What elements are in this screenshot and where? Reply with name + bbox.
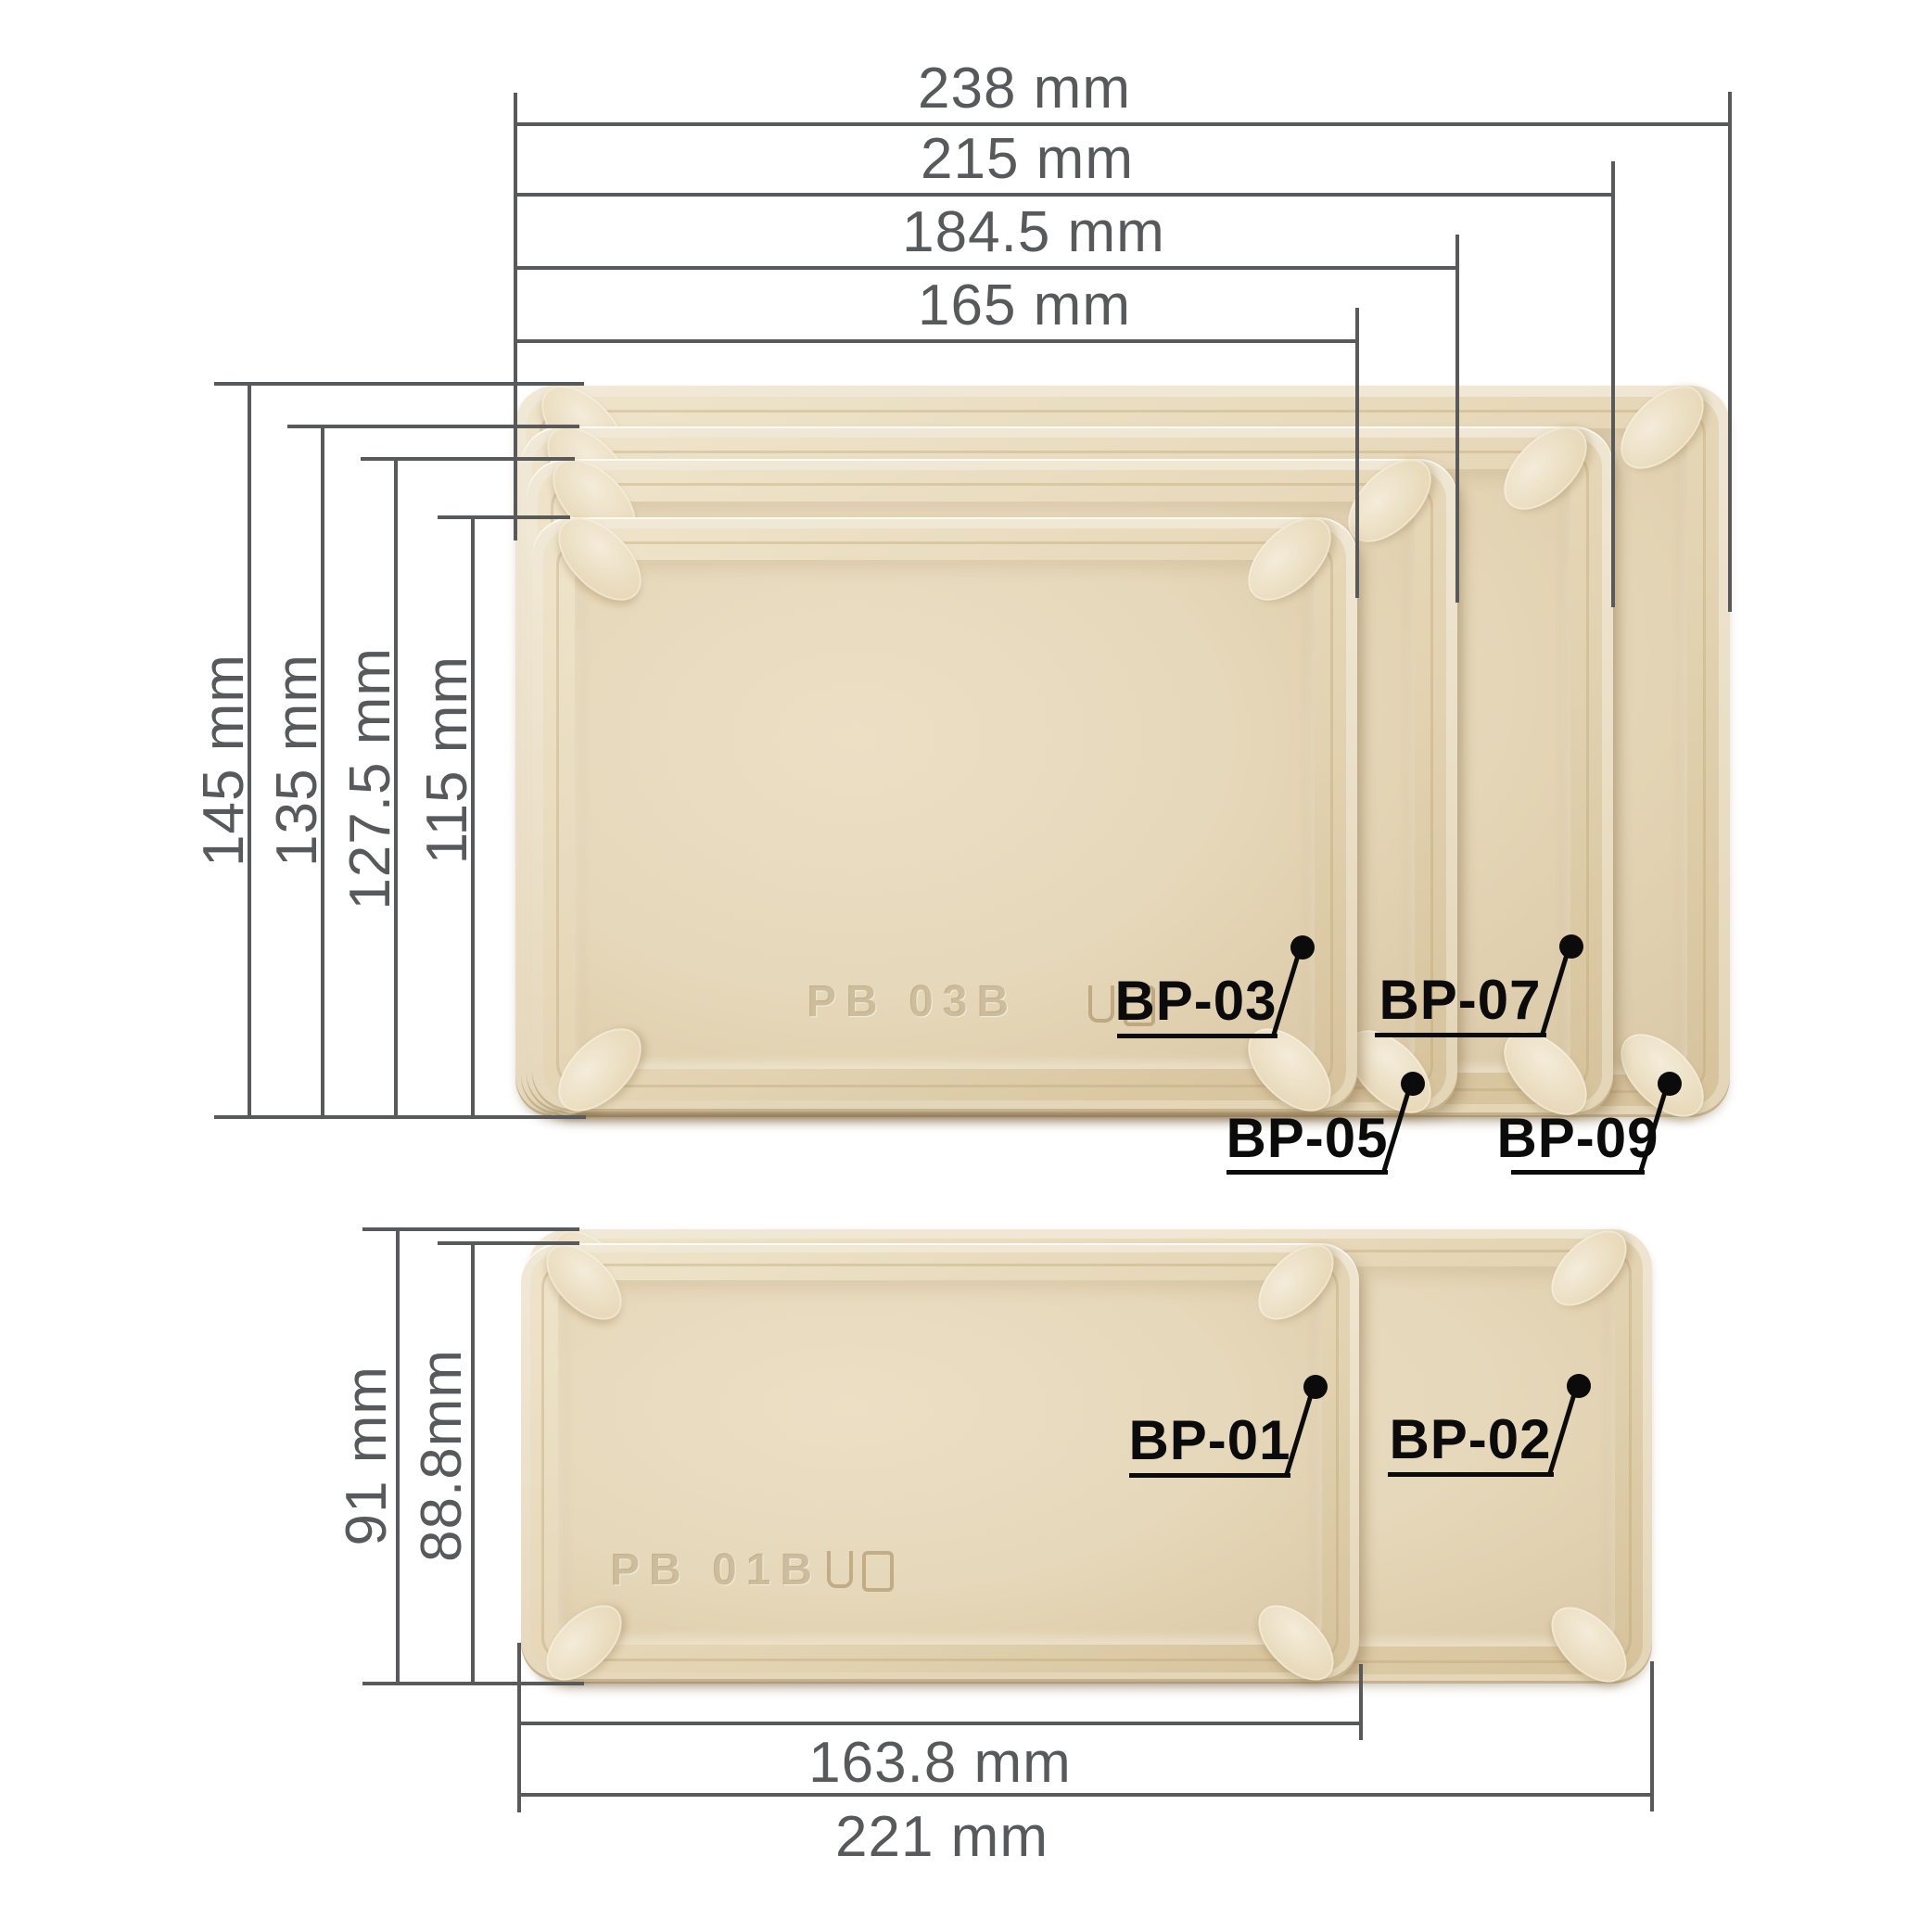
- dim-label-165mm: 165 mm: [793, 273, 1256, 338]
- callout-dot-bp03: [1290, 935, 1315, 960]
- dim-line-163.8mm: [519, 1722, 1361, 1725]
- extension-line-145mm-top: [214, 382, 584, 386]
- callout-label-bp05: BP-05: [1214, 1109, 1400, 1168]
- dim-label-135mm: 135 mm: [267, 436, 326, 1085]
- callout-label-bp02: BP-02: [1378, 1410, 1563, 1469]
- dim-label-145mm: 145 mm: [194, 436, 253, 1085]
- callout-dot-bp01: [1303, 1375, 1328, 1399]
- dim-label-215mm: 215 mm: [795, 127, 1259, 192]
- dim-label-221mm: 221 mm: [710, 1805, 1174, 1870]
- callout-label-bp01: BP-01: [1117, 1411, 1303, 1470]
- callout-dot-bp09: [1658, 1072, 1682, 1096]
- callout-underline-bp02: [1388, 1472, 1554, 1477]
- dim-line-184.5mm: [515, 266, 1457, 270]
- extension-line-163.8mm-right: [1359, 1664, 1363, 1740]
- dim-line-215mm: [515, 193, 1613, 197]
- dim-label-163.8mm: 163.8 mm: [708, 1731, 1172, 1796]
- extension-line-184.5mm-right: [1455, 235, 1459, 603]
- callout-underline-bp07: [1375, 1033, 1546, 1037]
- extension-line-top-stack-bottom: [214, 1115, 586, 1119]
- dim-line-238mm: [515, 122, 1730, 126]
- dim-label-88.8mm: 88.8mm: [412, 1224, 471, 1687]
- extension-line-238mm-right: [1728, 92, 1732, 612]
- callout-underline-bp03: [1117, 1034, 1277, 1038]
- callout-underline-bp01: [1129, 1473, 1290, 1478]
- tray-dimension-diagram: PB 03B 238 mm 215 mm 184.5 mm 165 mm 145…: [0, 0, 1932, 1932]
- callout-dot-bp02: [1567, 1374, 1591, 1398]
- callout-underline-bp09: [1511, 1170, 1645, 1175]
- callout-label-bp03: BP-03: [1103, 972, 1289, 1031]
- dim-label-127.5mm: 127.5 mm: [340, 436, 400, 1122]
- dim-label-91mm: 91 mm: [337, 1224, 396, 1687]
- extension-line-bottom-stack-bottom: [362, 1682, 584, 1685]
- extension-line-221mm-right: [1650, 1661, 1654, 1811]
- extension-line-bottom-left: [517, 1643, 521, 1812]
- extension-line-165mm-right: [1355, 308, 1359, 598]
- dim-line-221mm: [519, 1793, 1652, 1797]
- dim-label-115mm: 115 mm: [417, 436, 477, 1085]
- embossed-model-text: PB 01B: [577, 1544, 855, 1595]
- extension-line-135mm-top: [287, 425, 579, 428]
- callout-underline-bp05: [1227, 1170, 1388, 1175]
- dim-label-184.5mm: 184.5 mm: [802, 200, 1265, 265]
- extension-line-left-shared: [514, 93, 517, 540]
- callout-label-bp07: BP-07: [1367, 971, 1553, 1030]
- dim-label-238mm: 238 mm: [793, 57, 1256, 121]
- extension-line-215mm-right: [1611, 161, 1615, 607]
- embossed-model-text: PB 03B: [727, 976, 1098, 1027]
- callout-dot-bp07: [1559, 934, 1583, 959]
- glass-fork-icon: [827, 1551, 894, 1592]
- callout-dot-bp05: [1401, 1072, 1425, 1096]
- dim-line-165mm: [515, 339, 1357, 343]
